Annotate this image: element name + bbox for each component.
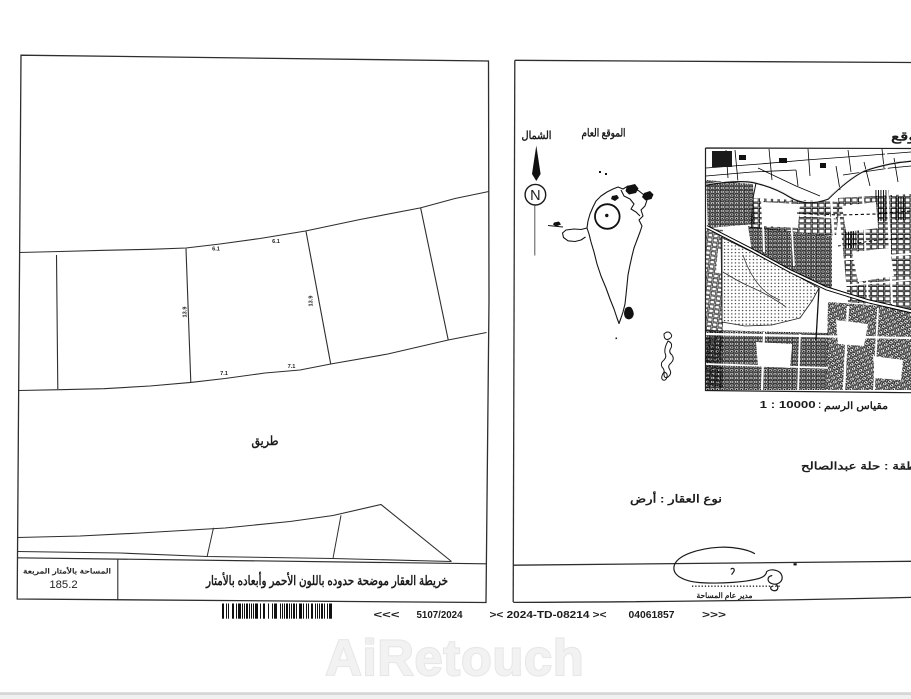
svg-text:المنطقة : حلة عبدالصالح: المنطقة : حلة عبدالصالح	[801, 461, 911, 473]
svg-text:7.1: 7.1	[288, 364, 296, 370]
svg-text:خريطة العقار موضحة حدوده باللو: خريطة العقار موضحة حدوده باللون الأحمر و…	[205, 572, 448, 589]
svg-text:6.1: 6.1	[212, 247, 220, 253]
svg-text:1 : 10000: 1 : 10000	[760, 400, 817, 411]
svg-text:مقياس الرسم: مقياس الرسم	[824, 401, 888, 412]
svg-text:الموقع العام: الموقع العام	[582, 128, 626, 140]
svg-text:13.9: 13.9	[309, 296, 315, 307]
svg-text:N: N	[530, 188, 540, 204]
svg-text:04061857: 04061857	[629, 609, 675, 621]
svg-text:5107/2024: 5107/2024	[417, 609, 463, 621]
svg-text:<<<: <<<	[374, 609, 400, 621]
svg-text:طريق: طريق	[252, 434, 279, 449]
svg-text:AiRetouch: AiRetouch	[326, 630, 585, 686]
svg-text:7.1: 7.1	[220, 371, 228, 377]
svg-text:نوع العقار : أرض: نوع العقار : أرض	[630, 492, 722, 506]
svg-text:الشمال: الشمال	[522, 130, 552, 142]
svg-text::: :	[818, 400, 821, 411]
svg-text:الموقع: الموقع	[891, 130, 911, 145]
svg-text:185.2: 185.2	[49, 579, 77, 591]
svg-text:13.9: 13.9	[183, 307, 189, 318]
svg-text:مدير عام المساحة: مدير عام المساحة	[697, 591, 753, 601]
svg-text:>>>: >>>	[702, 609, 726, 621]
svg-text:6.1: 6.1	[272, 239, 280, 245]
svg-text:>< 2024-TD-08214 ><: >< 2024-TD-08214 ><	[490, 609, 607, 621]
